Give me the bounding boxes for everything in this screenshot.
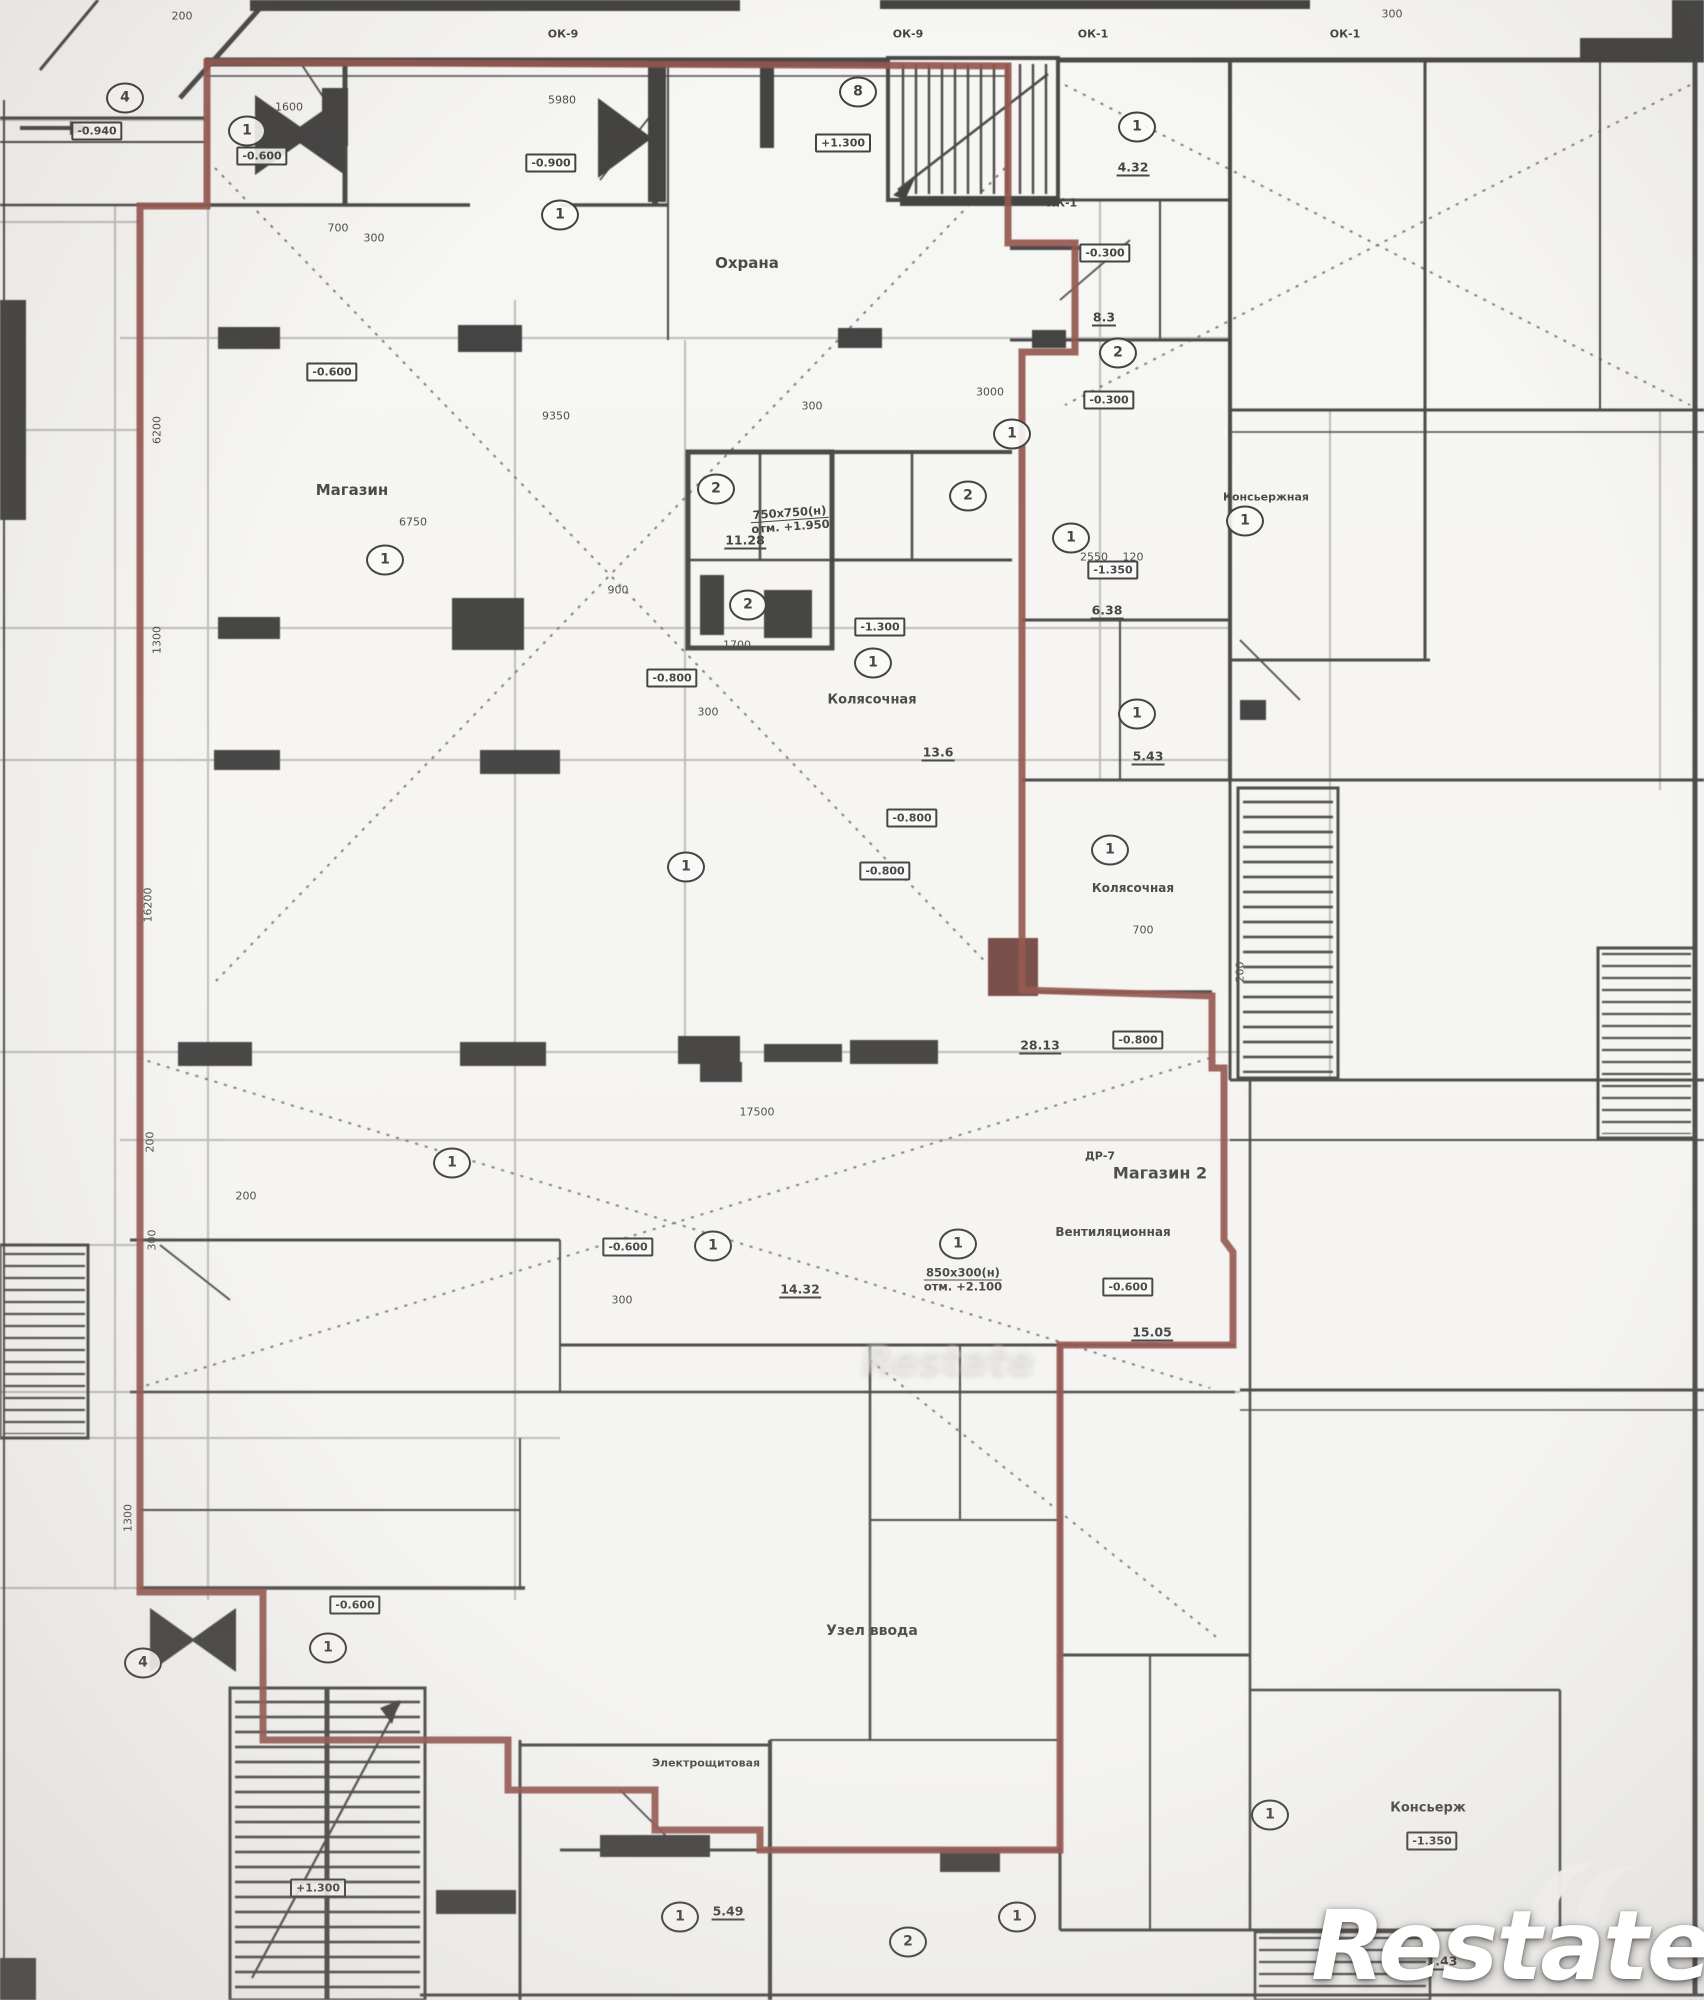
dimension-label: 16200 [142,888,155,923]
elevation-label: -0.600 [306,363,357,382]
dimension-label: 200 [1234,962,1247,983]
room-number-bubble: 1 [433,1148,471,1179]
watermark-ghost: Restate [862,1338,1012,1396]
elevation-label: -0.600 [329,1596,380,1615]
area-label: 5.49 [712,1904,745,1921]
elevation-label: -1.300 [854,618,905,637]
area-label: 14.32 [779,1282,821,1299]
dimension-label: 9350 [542,410,570,423]
elevation-label: +1.300 [815,134,871,153]
room-number-bubble: 2 [729,590,767,621]
dimension-label: 300 [612,1294,633,1307]
room-number-bubble: 1 [1118,112,1156,143]
dimension-label: 1700 [723,639,751,652]
room-number-bubble: 1 [1226,506,1264,537]
room-number-bubble: 1 [854,648,892,679]
room-number-bubble: 4 [106,83,144,114]
elevation-label: -0.600 [236,147,287,166]
area-label: 5.43 [1132,749,1165,766]
area-label: 15.05 [1131,1325,1173,1342]
area-label: 4.32 [1117,160,1150,177]
elevation-label: +1.300 [290,1879,346,1898]
elevation-label: -0.800 [886,809,937,828]
dimension-label: 900 [608,584,629,597]
elevation-label: -1.350 [1406,1832,1457,1851]
opening-tag: ОК-9 [548,28,579,41]
dimension-note: 850х300(н)отм. +2.100 [924,1267,1002,1294]
dimension-label: 1600 [275,101,303,114]
dimension-label: 3000 [976,386,1004,399]
elevation-label: -0.600 [602,1238,653,1257]
watermark-text: estate [1378,1890,1704,2000]
room-number-bubble: 2 [889,1927,927,1958]
opening-tag: ДР-7 [1085,1150,1115,1163]
dimension-label: 300 [364,232,385,245]
plan-annotations: ОхранаМагазинМагазин 2КолясочнаяКолясочн… [0,0,1704,2000]
dimension-label: 200 [144,1132,157,1153]
room-number-bubble: 1 [694,1231,732,1262]
dimension-label: 6750 [399,516,427,529]
room-label: Магазин 2 [1113,1164,1207,1183]
opening-tag: ЛК-1 [1047,197,1077,210]
dimension-label: 700 [328,222,349,235]
room-number-bubble: 1 [667,852,705,883]
dimension-label: 2550 [1080,551,1108,564]
room-number-bubble: 1 [366,545,404,576]
room-number-bubble: 1 [1091,835,1129,866]
area-label: 8.3 [1092,310,1116,327]
room-number-bubble: 1 [1251,1800,1289,1831]
elevation-label: -0.300 [1079,244,1130,263]
elevation-label: -0.800 [859,862,910,881]
dimension-label: 300 [698,706,719,719]
room-label: Вентиляционная [1055,1225,1170,1239]
room-label: Электрощитовая [652,1757,760,1770]
area-label: 28.13 [1019,1038,1061,1055]
elevation-label: -0.800 [646,669,697,688]
dimension-label: 1300 [151,626,164,654]
floor-plan-image: ОхранаМагазинМагазин 2КолясочнаяКолясочн… [0,0,1704,2000]
opening-tag: ОК-9 [893,28,924,41]
area-label: 13.6 [922,745,955,762]
area-label: 6.38 [1091,603,1124,620]
room-label: Консьерж [1390,1801,1466,1816]
room-label: Узел ввода [826,1623,918,1639]
room-label: Охрана [715,254,779,272]
elevation-label: -0.600 [1102,1278,1153,1297]
dimension-note: 750х750(н)отм. +1.950 [750,504,830,536]
elevation-label: -0.800 [1112,1031,1163,1050]
room-number-bubble: 1 [309,1633,347,1664]
room-number-bubble: 8 [839,77,877,108]
dimension-label: 200 [236,1190,257,1203]
dimension-label: 300 [146,1230,159,1251]
room-number-bubble: 1 [541,200,579,231]
dimension-label: 200 [172,10,193,23]
room-number-bubble: 1 [939,1229,977,1260]
dimension-label: 300 [802,400,823,413]
room-number-bubble: 2 [949,481,987,512]
dimension-label: 5980 [548,94,576,107]
room-number-bubble: 1 [1118,699,1156,730]
elevation-label: -0.300 [1083,391,1134,410]
dimension-label: 6200 [151,416,164,444]
room-number-bubble: 1 [993,419,1031,450]
room-number-bubble: 4 [124,1648,162,1679]
elevation-label: -0.900 [525,154,576,173]
dimension-label: 1300 [122,1504,135,1532]
watermark: Restate [1311,1898,1704,1994]
room-number-bubble: 2 [697,474,735,505]
note-line: 850х300(н) [924,1267,1002,1281]
room-number-bubble: 1 [228,116,266,147]
room-number-bubble: 2 [1099,338,1137,369]
area-label: 11.28 [724,533,766,550]
room-label: Колясочная [1092,881,1174,895]
dimension-label: 120 [1123,551,1144,564]
room-number-bubble: 1 [1052,523,1090,554]
dimension-label: 17500 [740,1106,775,1119]
elevation-label: -0.940 [71,122,122,141]
room-number-bubble: 1 [661,1902,699,1933]
room-number-bubble: 1 [998,1902,1036,1933]
opening-tag: ОК-1 [1078,28,1109,41]
room-label: Магазин [316,481,389,499]
dimension-label: 700 [1133,924,1154,937]
dimension-label: 300 [1382,8,1403,21]
room-label: Колясочная [827,693,916,708]
note-line: отм. +2.100 [924,1280,1002,1294]
opening-tag: ОК-1 [1330,28,1361,41]
watermark-r: R [1311,1890,1378,2000]
room-label: Консьержная [1223,491,1309,504]
